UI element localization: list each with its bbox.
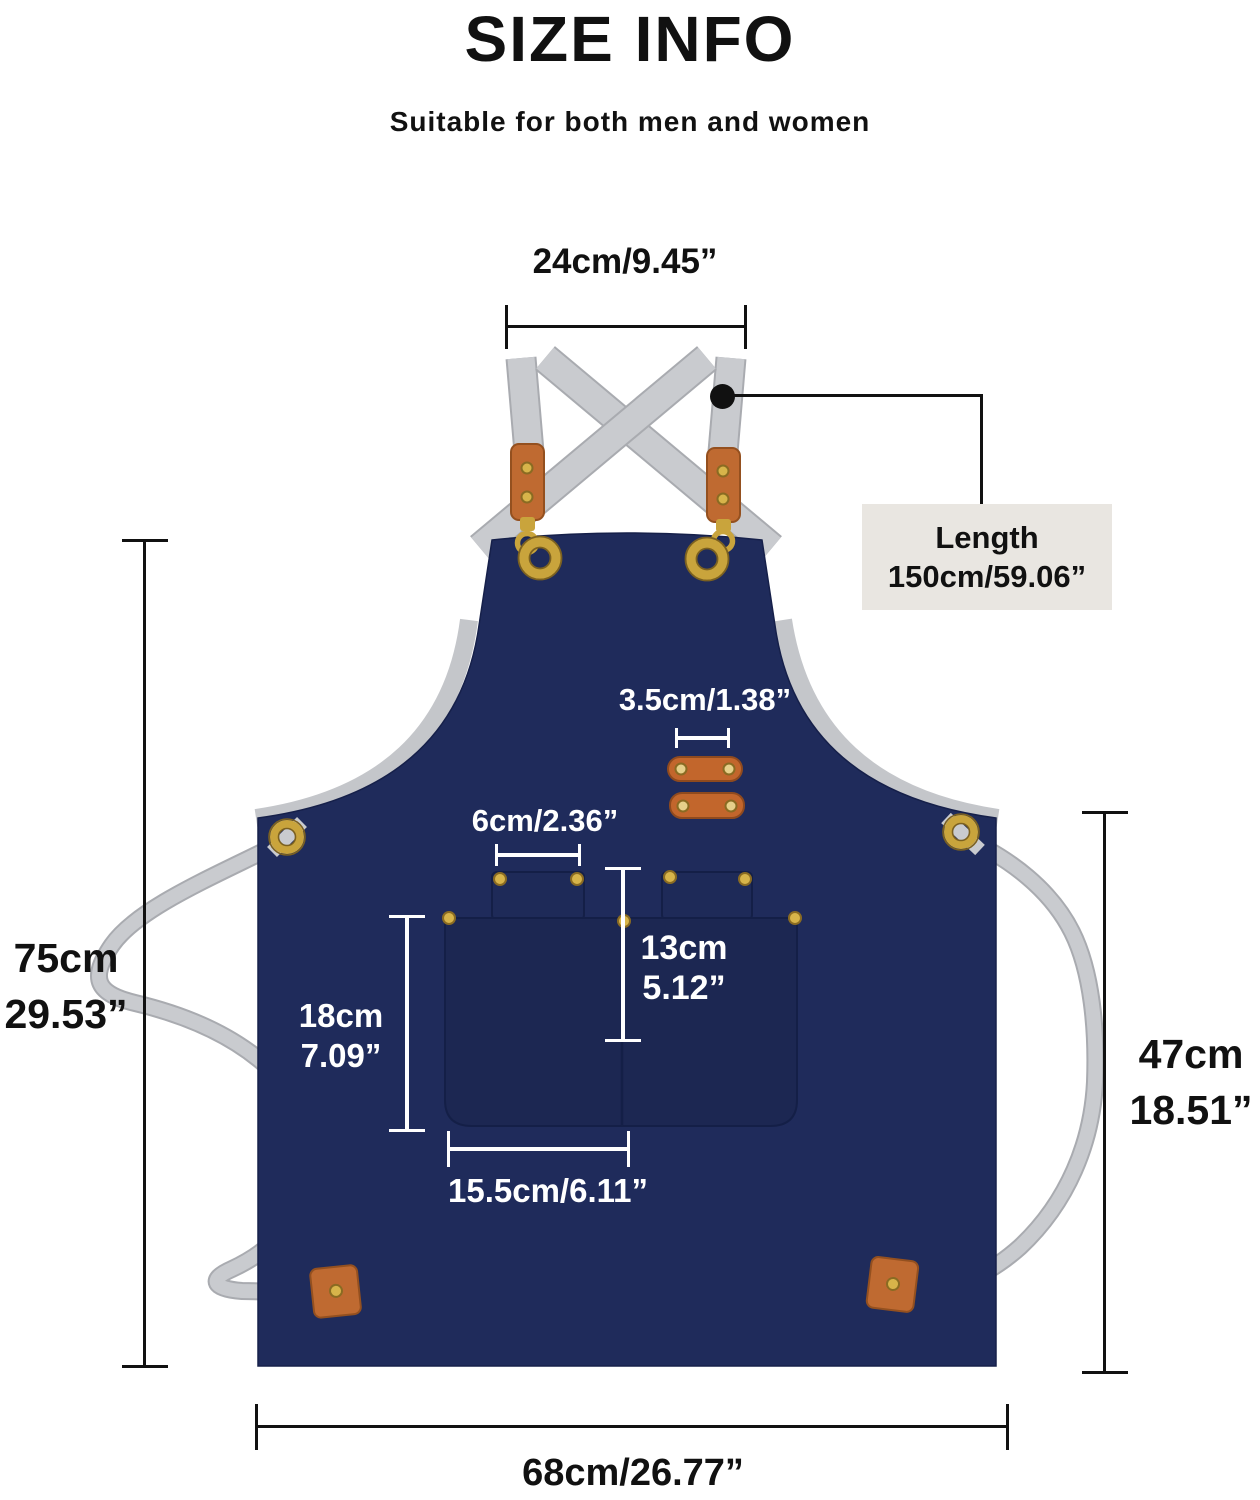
size-info-infographic: SIZE INFO Suitable for both men and wome… [0,0,1260,1500]
leader-line-horizontal [722,394,983,397]
dim-pocket-depth-inch: 5.12” [604,968,764,1008]
left-corner-tab [310,1265,362,1319]
dim-pocket-depth-cm: 13cm [604,928,764,968]
dim-pocket-width: 15.5cm/6.11” [408,1172,688,1210]
dim-pocket-depth: 13cm 5.12” [604,928,764,1008]
measure-line-pocket-depth [621,868,625,1041]
dim-pocket-height-cm: 18cm [262,996,420,1036]
measure-line-loop [676,736,729,740]
strap-length-label: Length [862,518,1112,557]
leader-line-vertical [980,394,983,508]
apron-illustration [0,0,1260,1500]
dim-lower-height-cm: 47cm [1122,1026,1260,1082]
dim-top-strap-width: 24cm/9.45” [430,242,820,282]
right-corner-tab [866,1256,919,1312]
dim-total-height-inch: 29.53” [0,986,132,1042]
page-title: SIZE INFO [0,2,1260,76]
strap-length-value: 150cm/59.06” [862,557,1112,596]
dim-loop-width: 3.5cm/1.38” [600,682,810,718]
measure-line-lower-height [1103,812,1106,1373]
dim-flap-width: 6cm/2.36” [440,803,650,839]
measure-line-total-height [143,540,146,1367]
measure-line-bottom-width [256,1425,1008,1428]
measure-line-top-strap [506,325,746,328]
dim-pocket-height-inch: 7.09” [262,1036,420,1076]
strap-length-callout: Length 150cm/59.06” [862,504,1112,610]
measure-line-pocket-width [448,1147,629,1151]
dim-lower-height: 47cm 18.51” [1122,1026,1260,1138]
measure-line-pocket-height [405,916,409,1131]
dim-lower-height-inch: 18.51” [1122,1082,1260,1138]
measure-line-flap [496,853,580,857]
dim-total-height: 75cm 29.53” [0,930,132,1042]
dim-pocket-height: 18cm 7.09” [262,996,420,1076]
dim-bottom-width: 68cm/26.77” [430,1452,836,1496]
dim-total-height-cm: 75cm [0,930,132,986]
page-subtitle: Suitable for both men and women [0,106,1260,138]
